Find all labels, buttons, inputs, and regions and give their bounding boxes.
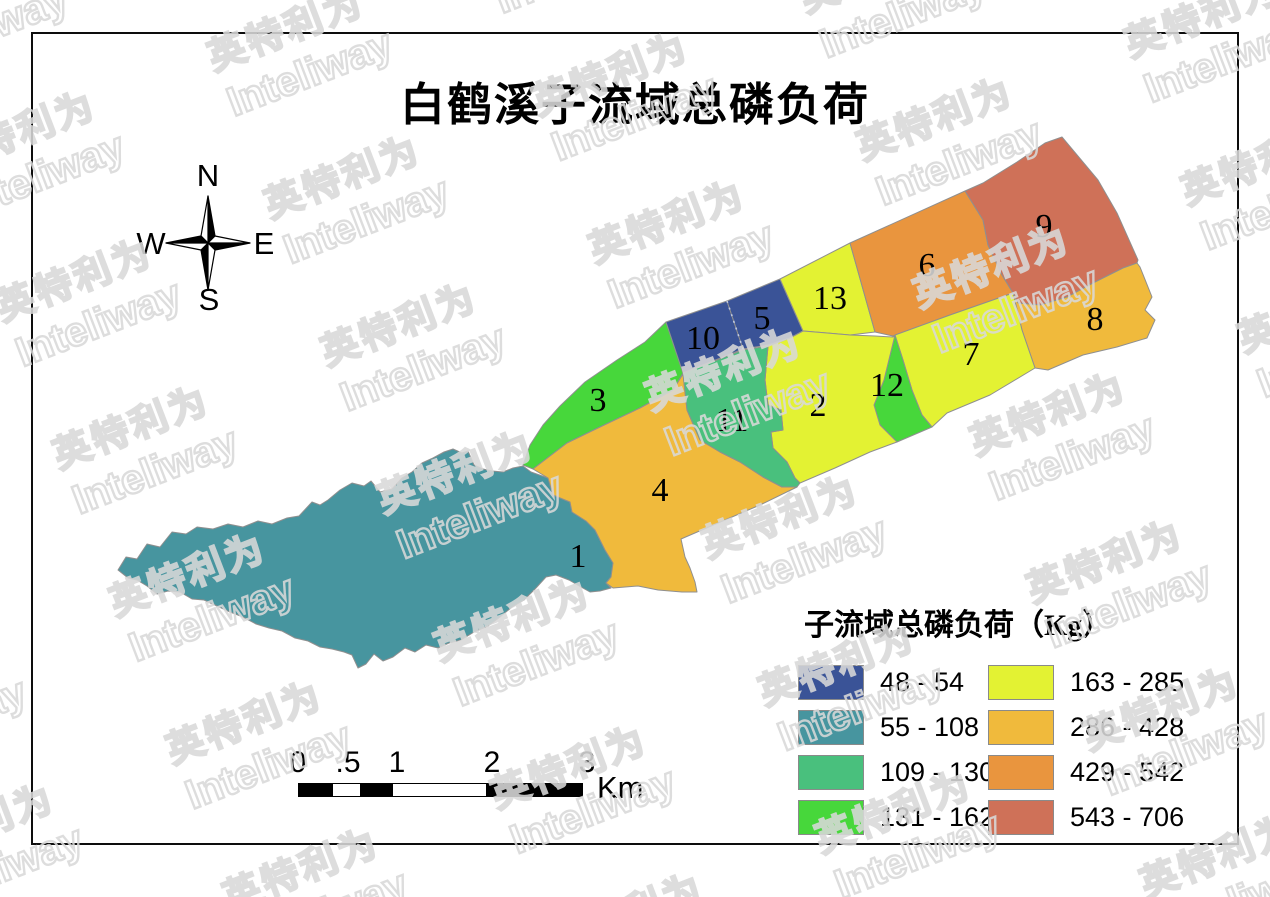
scalebar-segment — [392, 783, 487, 797]
legend-swatch — [798, 665, 864, 700]
scalebar-tick: 3 — [579, 746, 596, 780]
west-arrow-dark-half — [166, 236, 208, 243]
legend-item: 109 - 130 — [798, 750, 988, 795]
map-title: 白鹤溪子流域总磷负荷 — [31, 68, 1239, 133]
legend-label: 131 - 162 — [880, 802, 994, 833]
legend-label: 429 - 542 — [1070, 757, 1184, 788]
legend: 子流域总磷负荷（Kg） 48 - 5455 - 108109 - 130131 … — [798, 600, 1218, 840]
scalebar-segment — [360, 783, 393, 797]
scalebar-tick: 1 — [389, 746, 406, 780]
north-arrow-dark-half — [208, 196, 215, 243]
west-arrow-light-half — [166, 243, 208, 250]
legend-swatch — [798, 800, 864, 835]
scalebar-tick: 2 — [484, 746, 501, 780]
legend-swatch — [798, 710, 864, 745]
legend-swatch — [988, 800, 1054, 835]
scalebar-tick: 0 — [290, 746, 307, 780]
north-arrow-light-half — [201, 196, 208, 243]
legend-label: 543 - 706 — [1070, 802, 1184, 833]
map-document: 13410513698712211 白鹤溪子流域总磷负荷 N W E S 子流域… — [0, 0, 1270, 897]
legend-swatch — [798, 755, 864, 790]
legend-label: 286 - 428 — [1070, 712, 1184, 743]
compass-rose: N W E S — [130, 158, 286, 323]
legend-item: 131 - 162 — [798, 795, 988, 840]
compass-label-e: E — [254, 226, 275, 261]
compass-label-w: W — [136, 226, 166, 261]
legend-swatch — [988, 710, 1054, 745]
east-arrow-light-half — [208, 236, 250, 243]
legend-item: 543 - 706 — [988, 795, 1178, 840]
scalebar-bar — [298, 783, 583, 797]
legend-title: 子流域总磷负荷（Kg） — [804, 600, 1218, 644]
scalebar-segment — [298, 783, 333, 797]
legend-item: 55 - 108 — [798, 705, 988, 750]
scalebar-unit: Km — [597, 770, 644, 806]
legend-label: 55 - 108 — [880, 712, 979, 743]
legend-swatch — [988, 755, 1054, 790]
legend-label: 109 - 130 — [880, 757, 994, 788]
legend-items: 48 - 5455 - 108109 - 130131 - 162163 - 2… — [798, 660, 1218, 840]
scalebar: 0 .5 1 2 3 Km — [298, 746, 658, 806]
compass-label-s: S — [199, 282, 220, 317]
scalebar-segment — [332, 783, 361, 797]
legend-item: 163 - 285 — [988, 660, 1178, 705]
scalebar-tick: .5 — [335, 746, 360, 780]
legend-label: 163 - 285 — [1070, 667, 1184, 698]
legend-item: 429 - 542 — [988, 750, 1178, 795]
legend-item: 48 - 54 — [798, 660, 988, 705]
compass-label-n: N — [197, 158, 219, 193]
legend-item: 286 - 428 — [988, 705, 1178, 750]
legend-label: 48 - 54 — [880, 667, 964, 698]
scalebar-segment — [486, 783, 583, 797]
legend-swatch — [988, 665, 1054, 700]
